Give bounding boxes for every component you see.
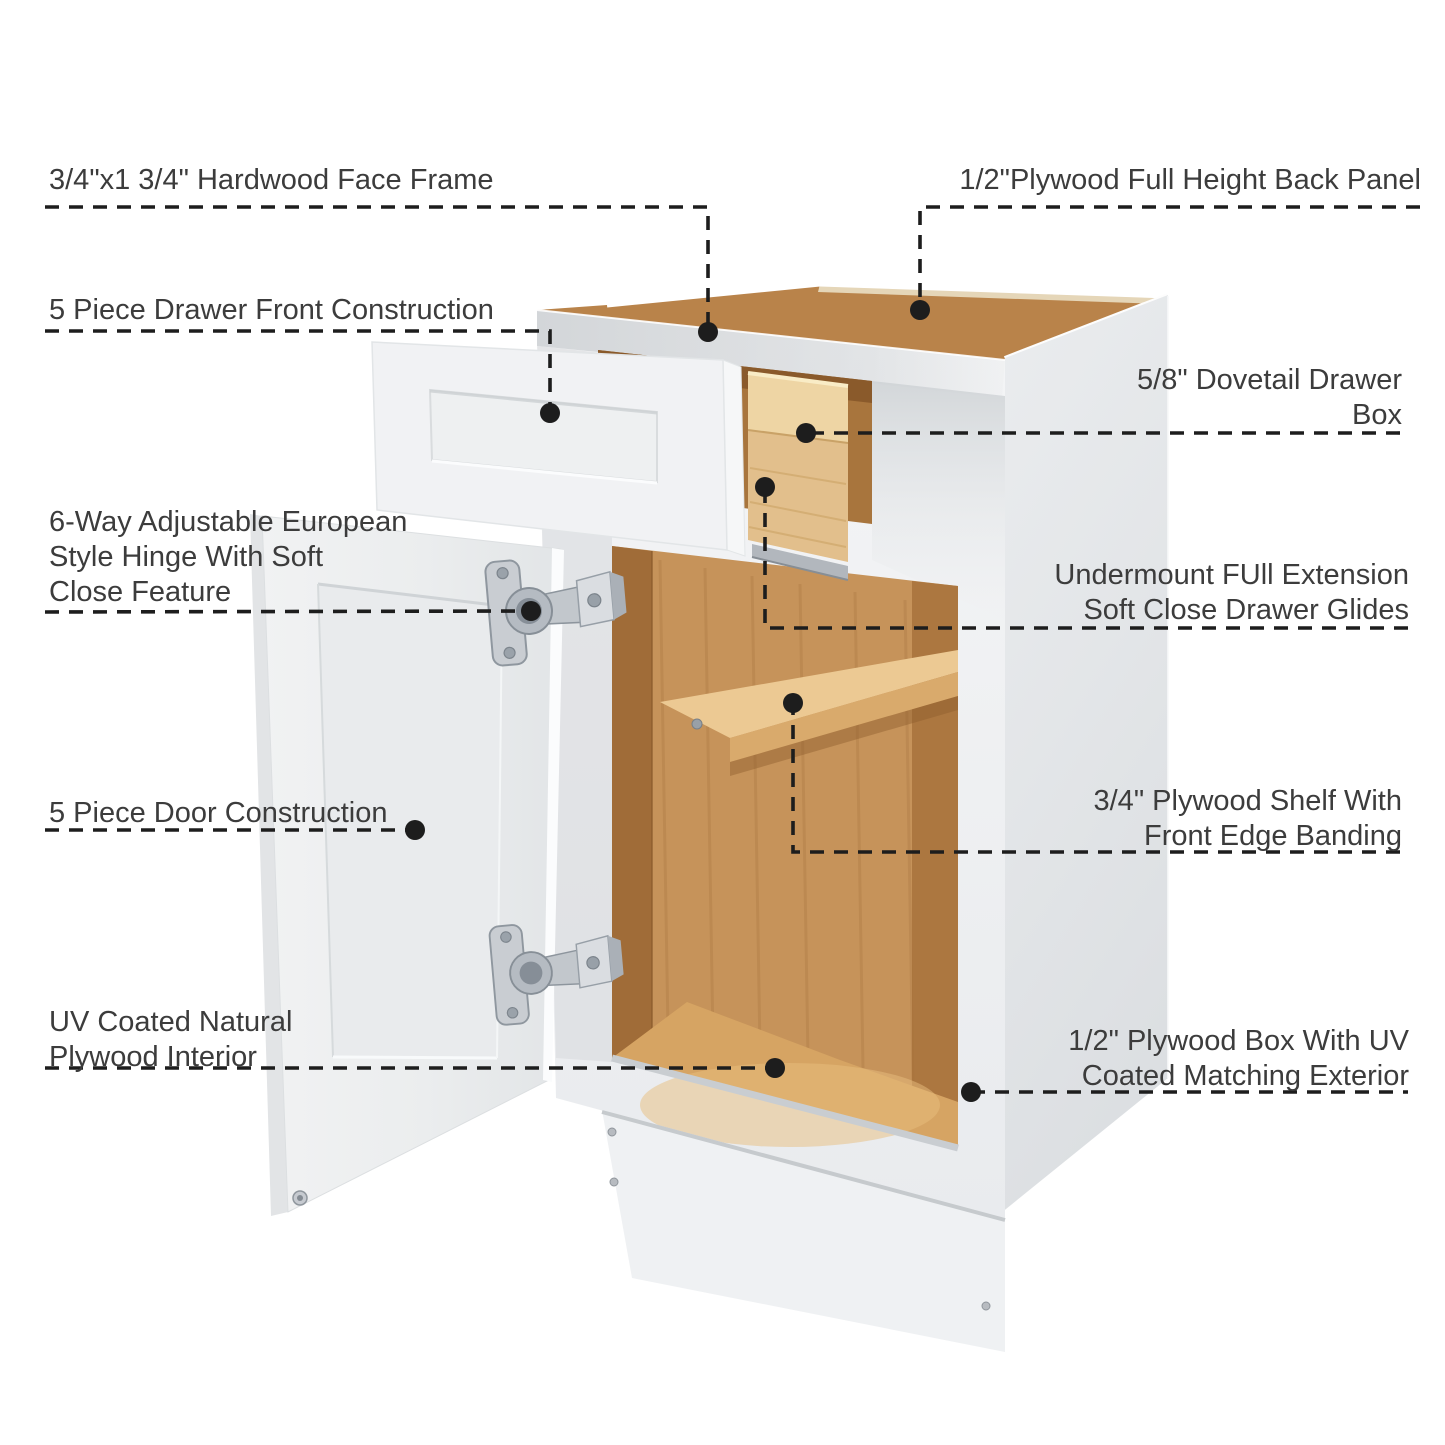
callout-label-drawer-glides: Undermount FUll Extension Soft Close Dra… — [1054, 558, 1409, 628]
callout-label-plywood-box: 1/2" Plywood Box With UV Coated Matching… — [1068, 1024, 1409, 1094]
callout-label-door-construction: 5 Piece Door Construction — [49, 796, 388, 831]
callout-label-drawer-front-construction: 5 Piece Drawer Front Construction — [49, 293, 494, 328]
door-bevel-bottom — [333, 1057, 497, 1058]
hinge-block-screw — [586, 956, 599, 969]
callout-label-plywood-interior: UV Coated Natural Plywood Interior — [49, 1005, 292, 1075]
dot-interior — [765, 1058, 785, 1078]
interior-left-wall — [612, 546, 652, 1064]
hinge-screw — [500, 931, 511, 942]
hinge-screw — [497, 567, 509, 579]
dot-shelf — [783, 693, 803, 713]
callout-label-plywood-shelf: 3/4" Plywood Shelf With Front Edge Bandi… — [1094, 784, 1403, 854]
toe-kick-screw — [608, 1128, 616, 1136]
dot-glides — [755, 477, 775, 497]
hinge-screw — [504, 647, 516, 659]
shelf-pin — [692, 719, 702, 729]
cabinet-interior — [612, 546, 958, 1148]
toe-kick-screw — [610, 1178, 618, 1186]
callout-label-back-panel: 1/2"Plywood Full Height Back Panel — [959, 163, 1421, 198]
leader-hinge — [45, 611, 531, 612]
callout-label-european-hinge: 6-Way Adjustable European Style Hinge Wi… — [49, 505, 407, 610]
toe-kick-screw — [982, 1302, 990, 1310]
hinge-screw — [507, 1007, 518, 1018]
dot-hinge — [521, 601, 541, 621]
dot-back-panel — [910, 300, 930, 320]
dot-face-frame — [698, 322, 718, 342]
door-bumper-screw-center — [297, 1195, 303, 1201]
drawer-front — [372, 342, 745, 556]
cabinet-illustration — [0, 0, 1445, 1445]
dot-door — [405, 820, 425, 840]
diagram-canvas: 3/4"x1 3/4" Hardwood Face Frame 5 Piece … — [0, 0, 1445, 1445]
drawer-box — [748, 372, 848, 580]
callout-label-hardwood-face-frame: 3/4"x1 3/4" Hardwood Face Frame — [49, 163, 494, 198]
dot-plywood-box — [961, 1082, 981, 1102]
callout-label-dovetail-drawer-box: 5/8" Dovetail Drawer Box — [1137, 363, 1402, 433]
dot-drawer-front — [540, 403, 560, 423]
hinge-block-screw — [587, 593, 601, 607]
dot-drawer-box — [796, 423, 816, 443]
